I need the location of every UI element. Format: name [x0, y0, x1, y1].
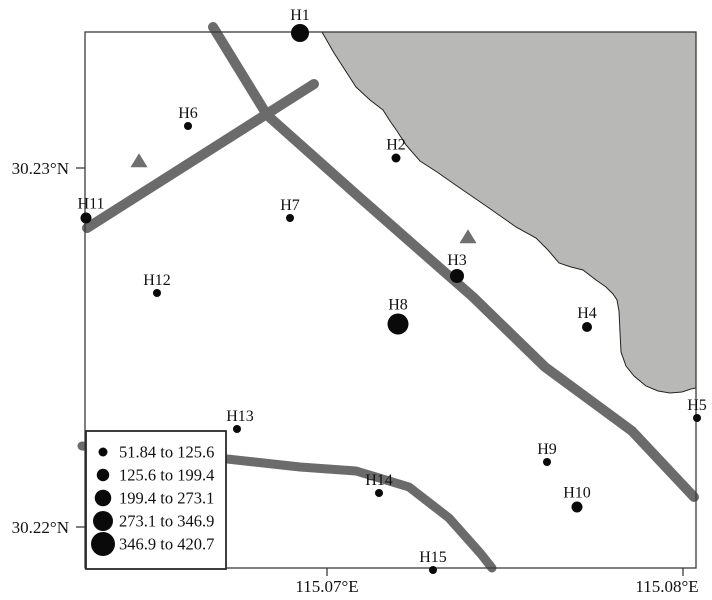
station-dot-h15	[429, 566, 437, 574]
station-dot-h7	[286, 214, 294, 222]
station-label-h11: H11	[78, 196, 105, 213]
station-label-h9: H9	[537, 441, 557, 458]
station-dot-h6	[184, 122, 192, 130]
legend-range-label: 346.9 to 420.7	[119, 535, 214, 554]
station-dot-h11	[81, 213, 92, 224]
station-label-h7: H7	[280, 197, 300, 214]
longitude-tick-label: 115.07°E	[295, 577, 358, 596]
figure-canvas: 30.23°N30.22°N115.07°E115.08°EH1H2H3H4H5…	[0, 0, 712, 600]
station-label-h4: H4	[577, 305, 597, 322]
legend-symbol	[99, 448, 108, 457]
legend-range-label: 51.84 to 125.6	[119, 443, 214, 462]
legend-range-label: 199.4 to 273.1	[119, 489, 214, 508]
station-label-h14: H14	[365, 472, 393, 489]
station-dot-h5	[693, 414, 701, 422]
landmark-triangle-icon	[460, 229, 477, 243]
legend-symbol	[91, 532, 115, 556]
station-dot-h1	[291, 24, 309, 42]
station-label-h2: H2	[386, 137, 406, 154]
station-label-h3: H3	[447, 252, 467, 269]
station-dot-h12	[153, 289, 161, 297]
station-dot-h9	[543, 458, 551, 466]
station-label-h10: H10	[563, 485, 591, 502]
station-dot-h2	[392, 154, 401, 163]
legend-range-label: 125.6 to 199.4	[119, 466, 214, 485]
station-dot-h8	[388, 314, 409, 335]
station-label-h6: H6	[178, 105, 198, 122]
station-dot-h14	[375, 489, 383, 497]
station-label-h1: H1	[290, 7, 310, 24]
station-label-h13: H13	[226, 408, 254, 425]
legend-symbol	[93, 511, 113, 531]
station-dot-h3	[450, 269, 464, 283]
station-label-h12: H12	[143, 272, 171, 289]
legend-symbol	[95, 490, 112, 507]
legend-range-label: 273.1 to 346.9	[119, 512, 214, 531]
landmark-triangle-icon	[131, 153, 148, 167]
latitude-tick-label: 30.22°N	[12, 518, 69, 537]
station-dot-h13	[233, 425, 241, 433]
station-label-h5: H5	[687, 397, 707, 414]
station-label-h15: H15	[419, 549, 447, 566]
station-map: 30.23°N30.22°N115.07°E115.08°EH1H2H3H4H5…	[0, 0, 712, 600]
legend-symbol	[97, 469, 110, 482]
station-dot-h4	[582, 322, 592, 332]
station-dot-h10	[572, 502, 583, 513]
station-label-h8: H8	[388, 297, 408, 314]
longitude-tick-label: 115.08°E	[635, 577, 698, 596]
latitude-tick-label: 30.23°N	[12, 159, 69, 178]
